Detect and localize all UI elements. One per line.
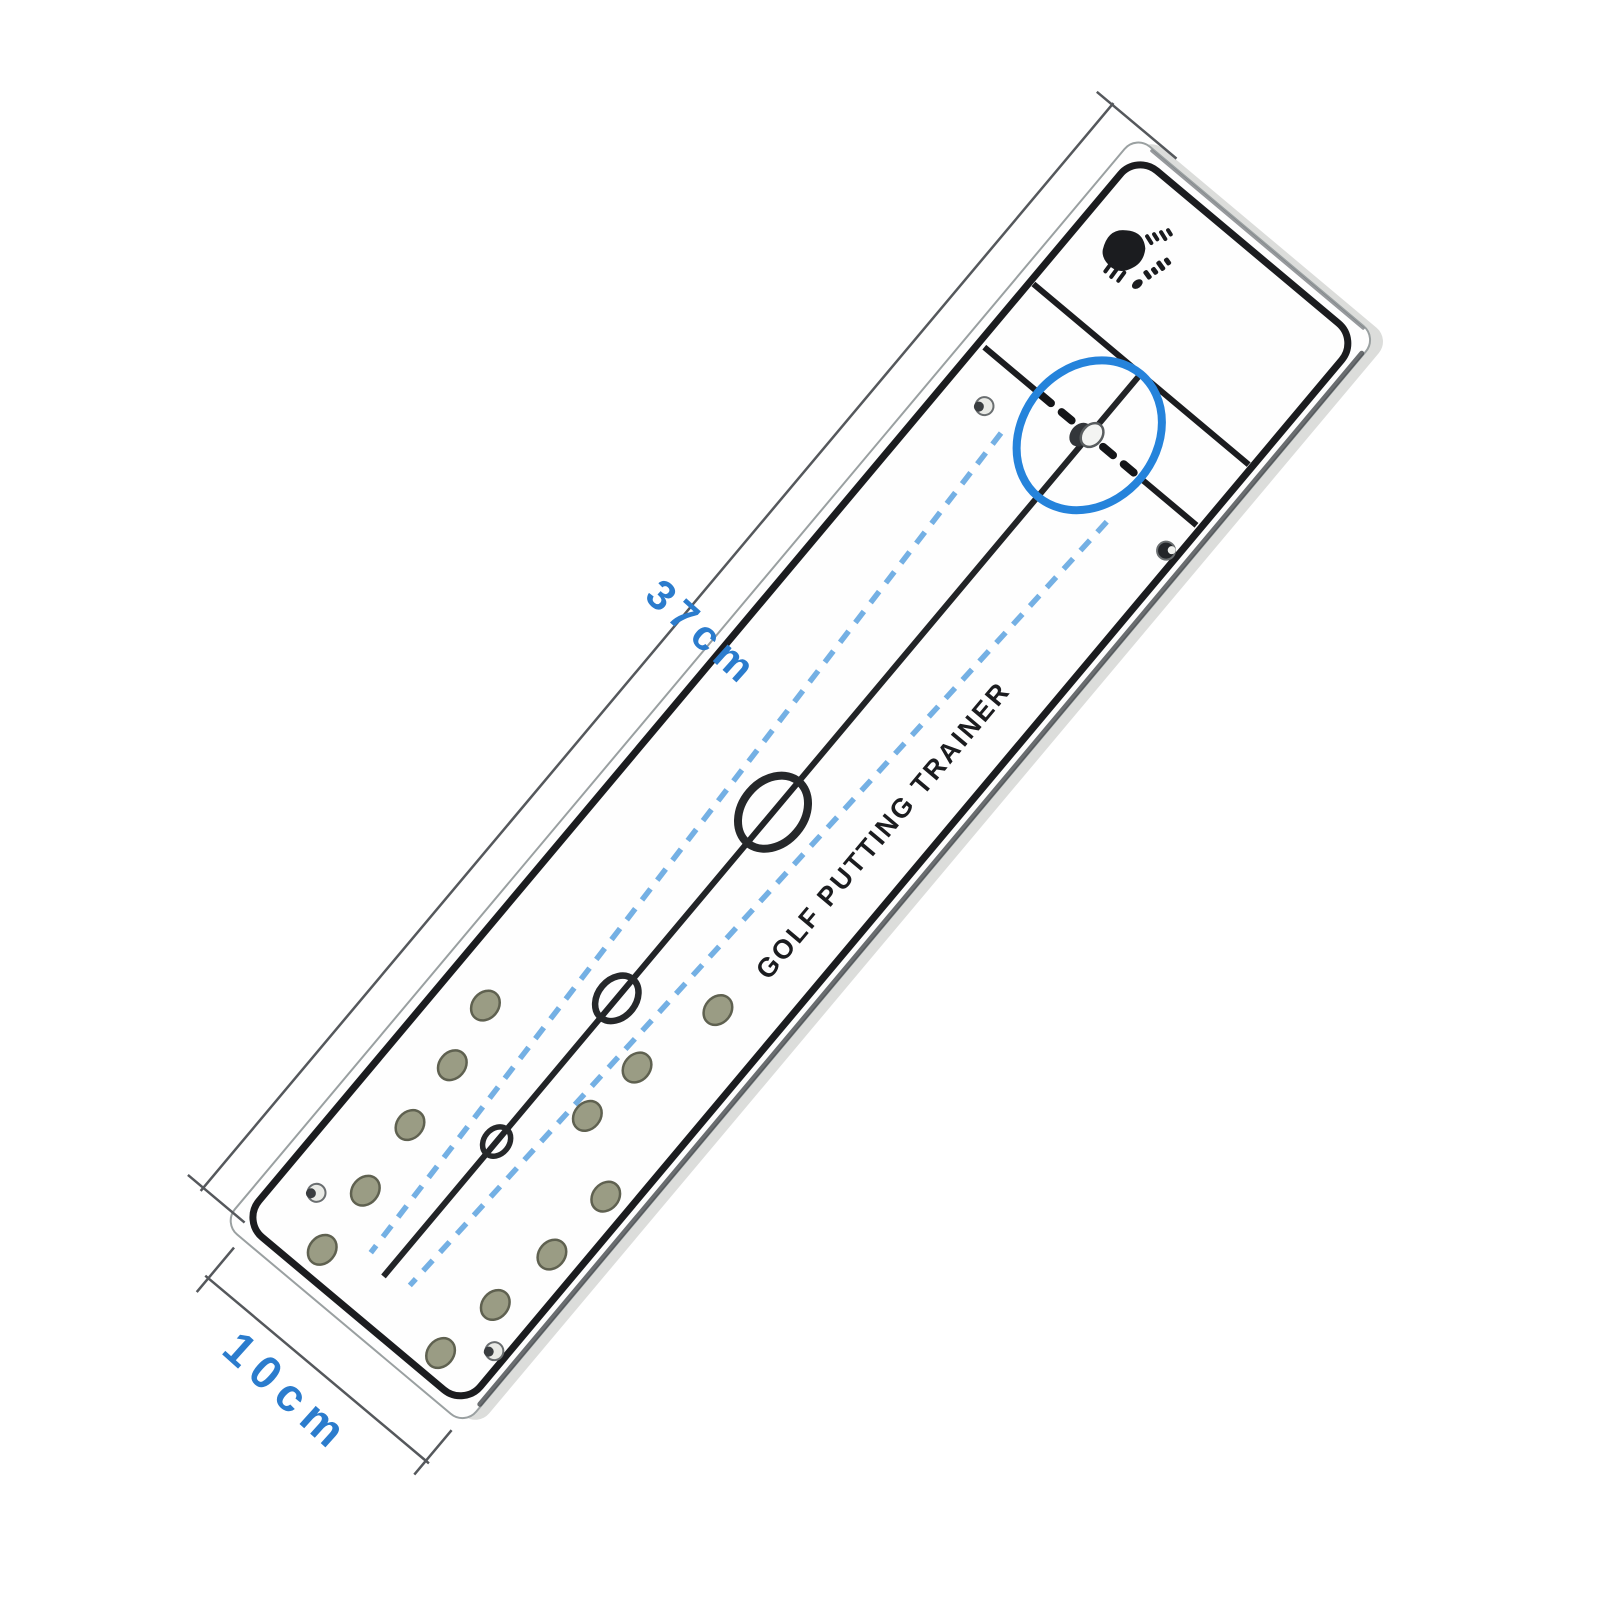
length-dimension-tick-start — [188, 1175, 245, 1223]
center-alignment-line — [383, 374, 1140, 1276]
product-photo-canvas: GOLF PUTTING TRAINER — [0, 0, 1600, 1600]
width-dimension-tick-end — [414, 1430, 451, 1474]
